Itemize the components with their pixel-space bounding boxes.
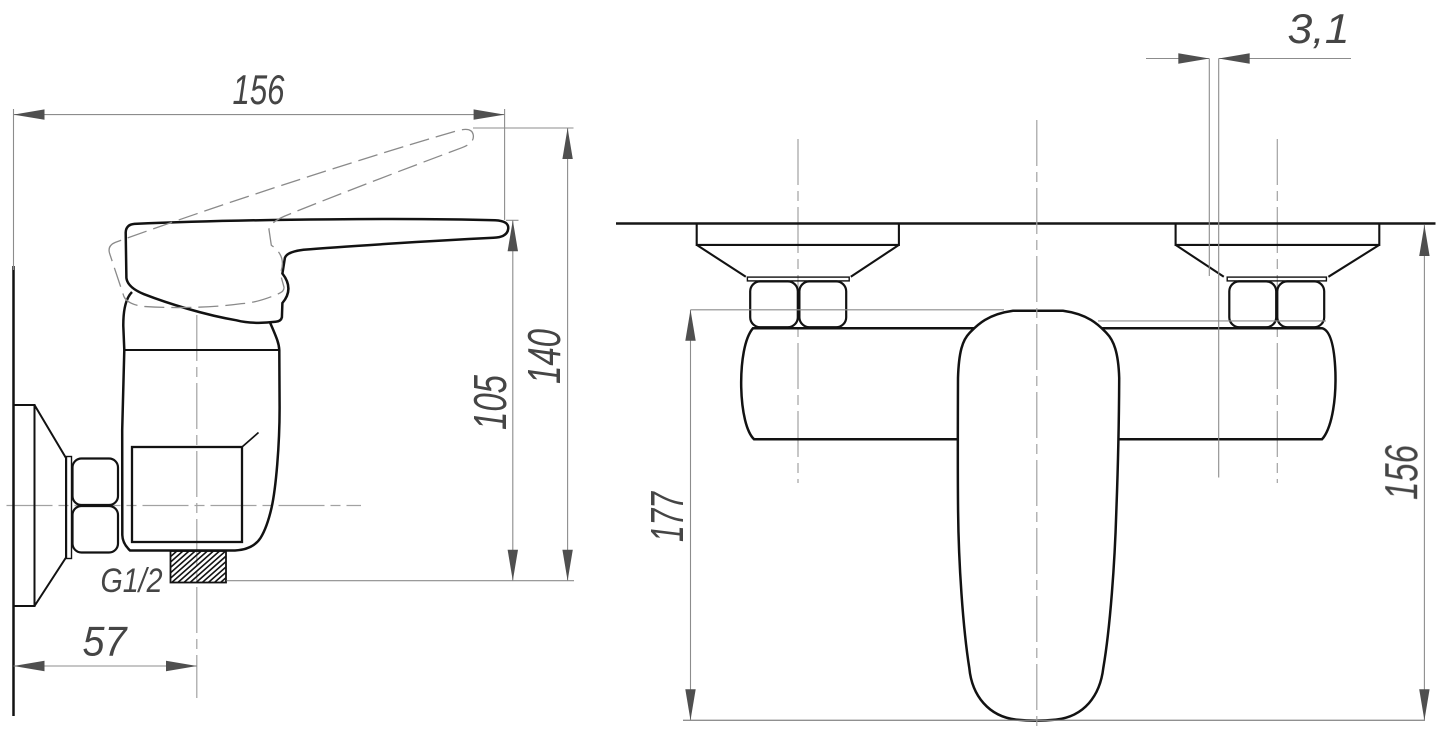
svg-text:3,1: 3,1 (1288, 5, 1350, 52)
svg-text:177: 177 (641, 491, 693, 542)
svg-text:156: 156 (1375, 445, 1427, 500)
svg-text:156: 156 (233, 66, 285, 113)
svg-text:140: 140 (518, 329, 570, 384)
svg-text:G1/2: G1/2 (101, 562, 163, 600)
svg-text:105: 105 (464, 375, 516, 430)
svg-text:57: 57 (83, 618, 129, 665)
